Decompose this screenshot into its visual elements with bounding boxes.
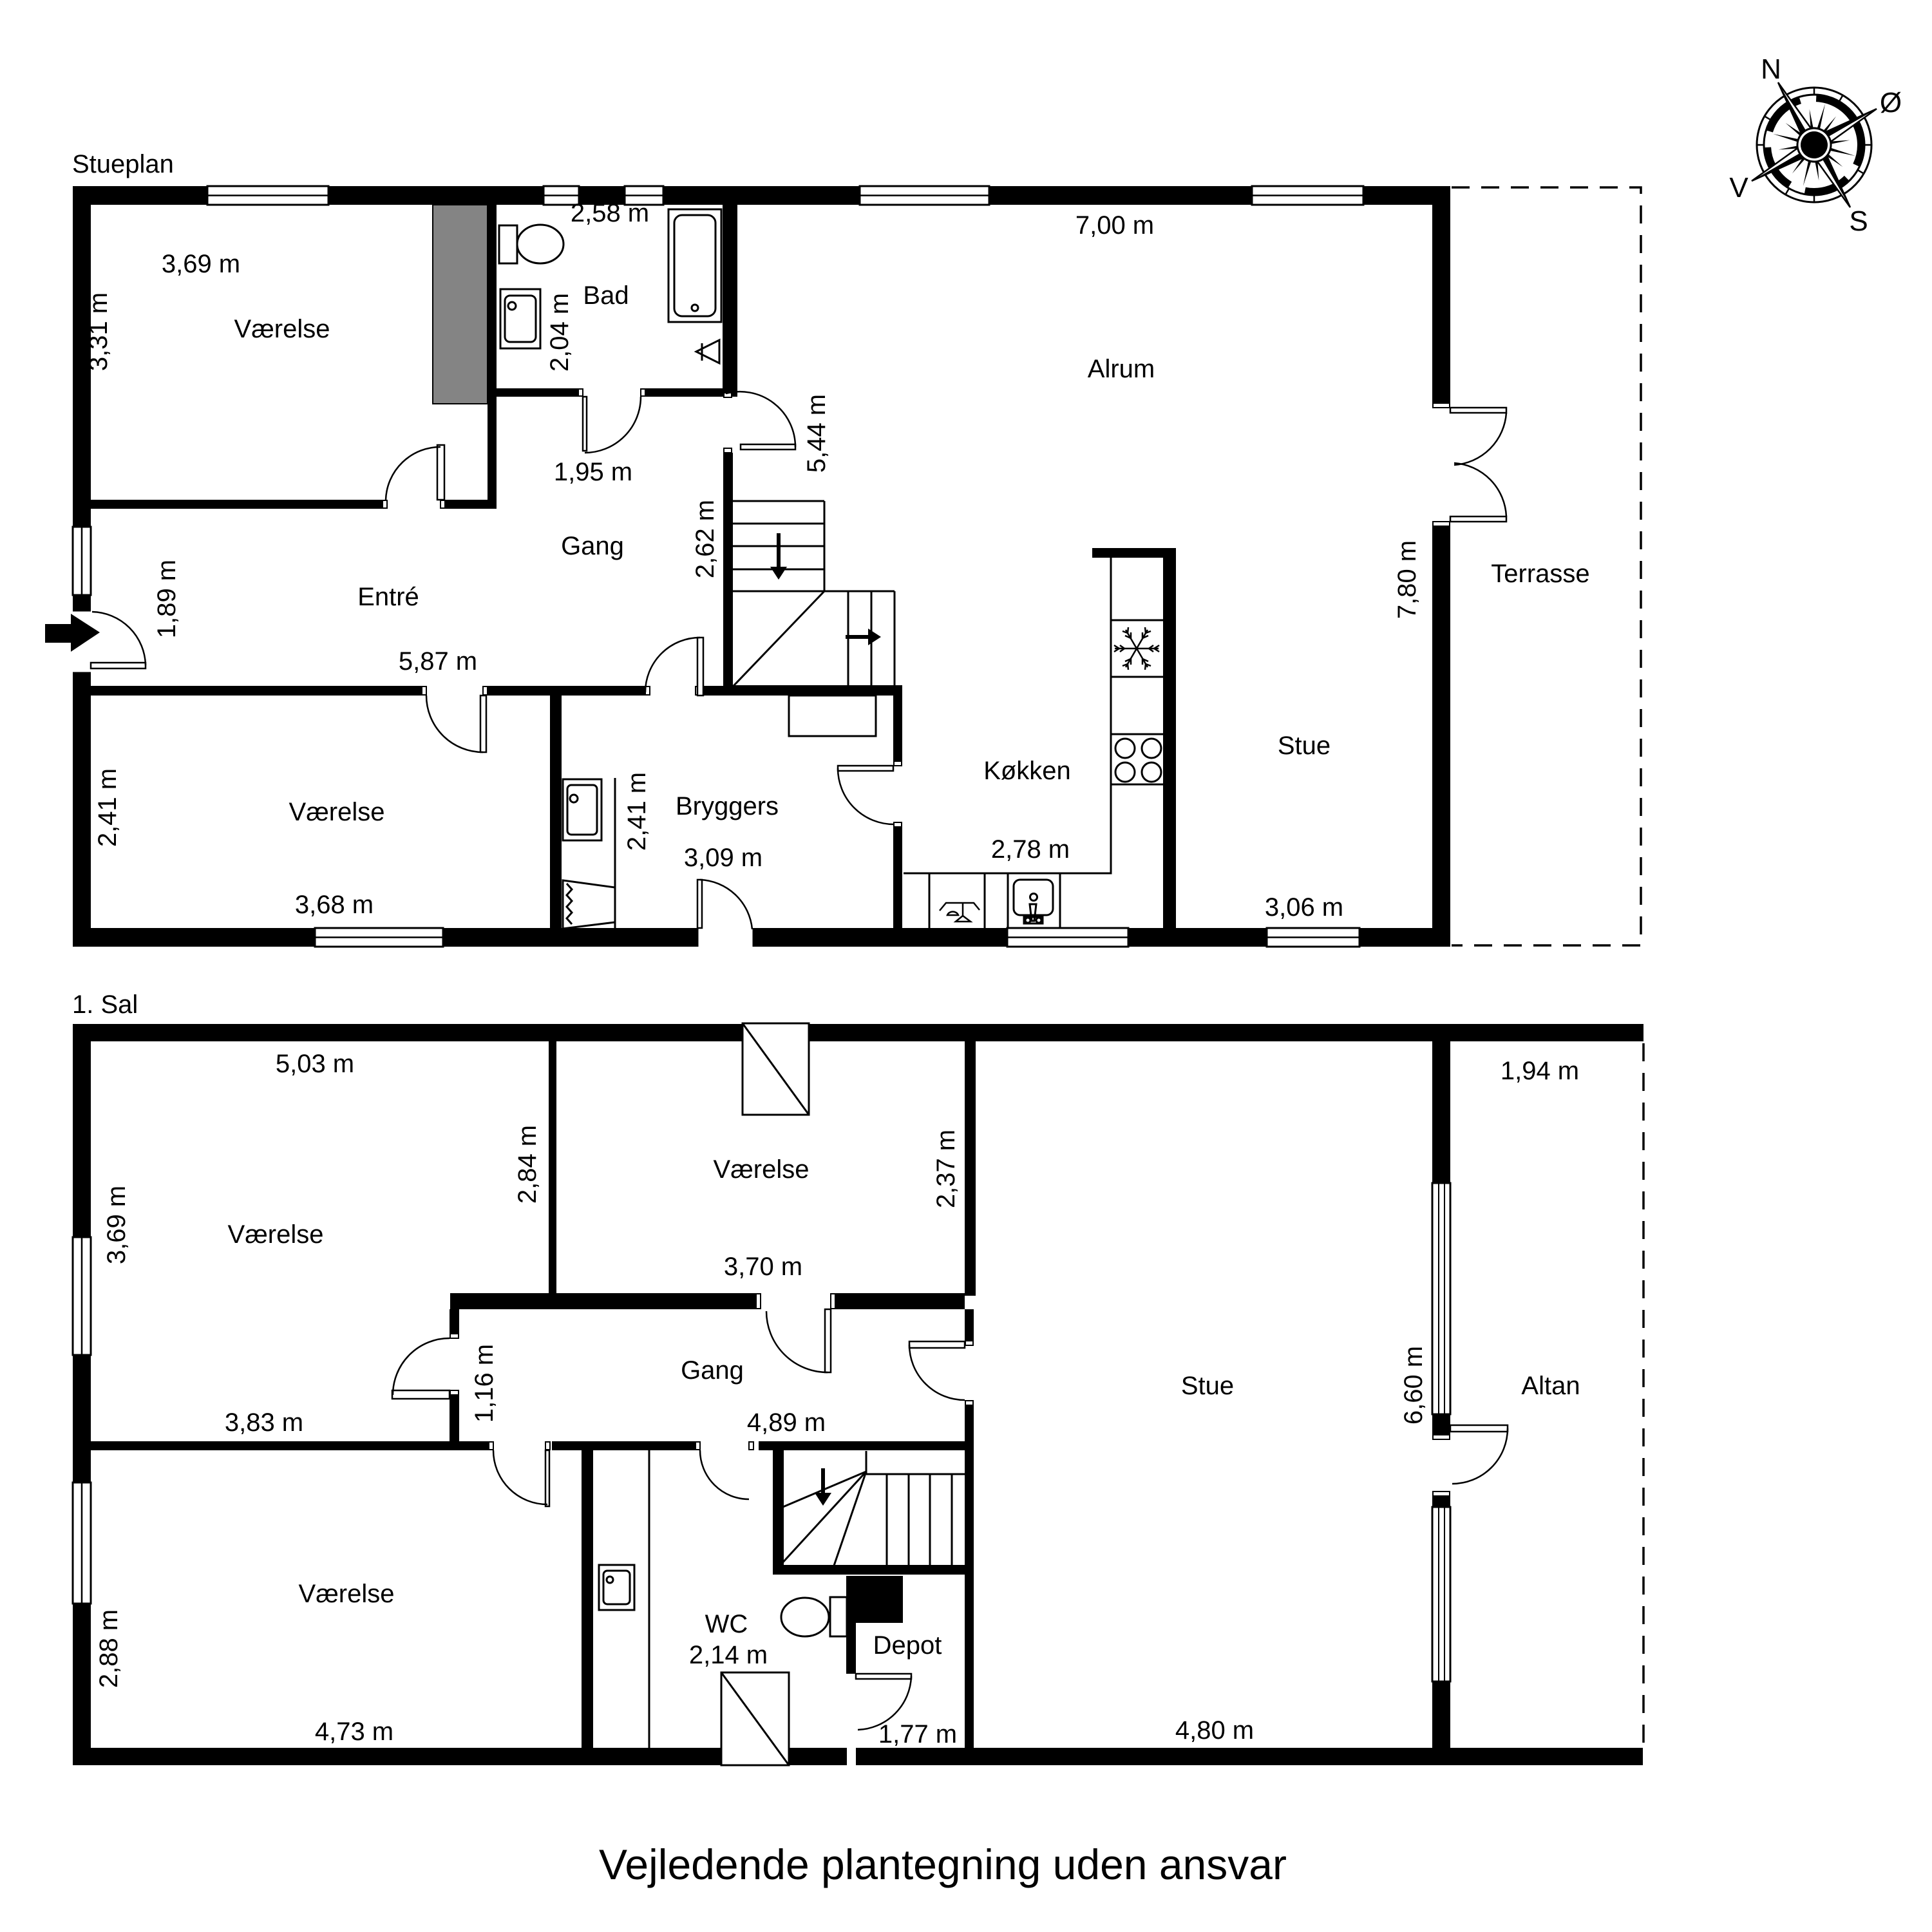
- svg-text:3,06 m: 3,06 m: [1265, 893, 1343, 922]
- svg-text:5,03 m: 5,03 m: [276, 1050, 354, 1078]
- svg-text:4,80 m: 4,80 m: [1175, 1716, 1254, 1745]
- svg-text:1,89 m: 1,89 m: [153, 560, 181, 638]
- svg-text:Værelse: Værelse: [714, 1155, 810, 1184]
- svg-text:3,83 m: 3,83 m: [225, 1408, 303, 1437]
- svg-text:2,41 m: 2,41 m: [623, 772, 651, 851]
- svg-text:Alrum: Alrum: [1088, 355, 1155, 383]
- svg-text:Stueplan: Stueplan: [72, 150, 174, 178]
- svg-text:2,88 m: 2,88 m: [95, 1609, 123, 1688]
- svg-text:3,69 m: 3,69 m: [162, 250, 240, 278]
- svg-text:3,69 m: 3,69 m: [102, 1186, 131, 1264]
- svg-text:2,41 m: 2,41 m: [93, 768, 122, 847]
- svg-text:3,31 m: 3,31 m: [84, 292, 113, 371]
- svg-text:2,58 m: 2,58 m: [571, 199, 649, 227]
- svg-text:Værelse: Værelse: [299, 1580, 395, 1608]
- svg-text:7,00 m: 7,00 m: [1075, 211, 1154, 240]
- svg-text:1,77 m: 1,77 m: [878, 1720, 957, 1748]
- svg-text:1. Sal: 1. Sal: [72, 990, 138, 1019]
- svg-text:3,70 m: 3,70 m: [724, 1253, 802, 1281]
- svg-text:2,14 m: 2,14 m: [689, 1641, 768, 1669]
- svg-text:4,89 m: 4,89 m: [747, 1408, 826, 1437]
- svg-text:Stue: Stue: [1278, 732, 1331, 760]
- svg-text:Stue: Stue: [1181, 1372, 1234, 1400]
- svg-text:S: S: [1849, 205, 1868, 237]
- svg-text:1,94 m: 1,94 m: [1501, 1057, 1579, 1085]
- svg-text:1,16 m: 1,16 m: [470, 1344, 498, 1423]
- svg-text:7,80 m: 7,80 m: [1393, 540, 1421, 619]
- svg-text:2,78 m: 2,78 m: [991, 835, 1070, 864]
- svg-text:Vejledende plantegning uden an: Vejledende plantegning uden ansvar: [599, 1841, 1287, 1888]
- svg-text:Bad: Bad: [583, 281, 629, 310]
- svg-text:Køkken: Køkken: [983, 757, 1071, 785]
- svg-text:1,95 m: 1,95 m: [554, 458, 632, 486]
- svg-text:Terrasse: Terrasse: [1491, 560, 1589, 588]
- svg-text:2,37 m: 2,37 m: [932, 1130, 960, 1208]
- svg-text:Værelse: Værelse: [228, 1220, 324, 1249]
- svg-text:Ø: Ø: [1880, 87, 1902, 118]
- svg-text:2,04 m: 2,04 m: [545, 293, 574, 372]
- svg-text:3,09 m: 3,09 m: [684, 844, 762, 872]
- svg-text:Værelse: Værelse: [234, 315, 330, 343]
- svg-text:WC: WC: [705, 1610, 748, 1638]
- svg-text:Gang: Gang: [681, 1356, 744, 1385]
- svg-text:Entré: Entré: [357, 583, 419, 611]
- svg-text:4,73 m: 4,73 m: [315, 1718, 393, 1746]
- svg-text:2,84 m: 2,84 m: [513, 1125, 542, 1204]
- svg-text:6,60 m: 6,60 m: [1399, 1346, 1428, 1425]
- svg-text:Depot: Depot: [873, 1631, 942, 1660]
- svg-text:Altan: Altan: [1521, 1372, 1580, 1400]
- svg-text:Bryggers: Bryggers: [676, 792, 779, 820]
- svg-text:V: V: [1729, 172, 1748, 204]
- svg-text:3,68 m: 3,68 m: [295, 891, 374, 919]
- svg-text:Værelse: Værelse: [289, 798, 385, 826]
- svg-text:5,44 m: 5,44 m: [802, 394, 831, 473]
- svg-text:Gang: Gang: [561, 532, 624, 560]
- svg-text:5,87 m: 5,87 m: [399, 647, 477, 676]
- svg-text:2,62 m: 2,62 m: [691, 500, 719, 578]
- svg-text:N: N: [1761, 53, 1781, 85]
